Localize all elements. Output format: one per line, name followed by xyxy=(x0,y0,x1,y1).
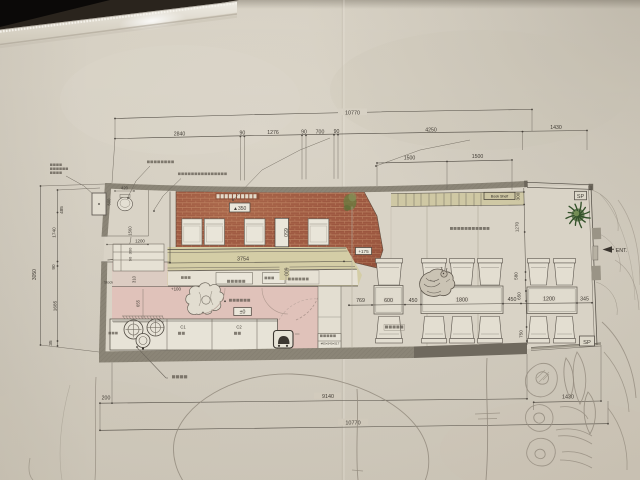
svg-text:300: 300 xyxy=(128,247,133,254)
svg-text:1430: 1430 xyxy=(562,395,574,401)
svg-text:2840: 2840 xyxy=(174,132,186,138)
svg-text:769: 769 xyxy=(356,298,365,304)
svg-text:Stock: Stock xyxy=(104,280,113,284)
svg-text:750: 750 xyxy=(519,330,524,338)
svg-text:580: 580 xyxy=(514,272,519,280)
svg-text:1500: 1500 xyxy=(404,156,416,162)
svg-text:SP: SP xyxy=(583,340,591,346)
svg-text:345: 345 xyxy=(580,296,589,302)
svg-text:450: 450 xyxy=(409,298,418,304)
svg-text:10770: 10770 xyxy=(345,110,360,116)
svg-text:C1: C1 xyxy=(180,325,186,330)
svg-text:3050: 3050 xyxy=(32,269,38,280)
svg-text:90: 90 xyxy=(128,256,133,261)
svg-text:±0: ±0 xyxy=(240,310,246,316)
svg-text:▲350: ▲350 xyxy=(233,206,247,212)
svg-text:1500: 1500 xyxy=(472,154,484,160)
svg-text:1800: 1800 xyxy=(456,298,468,304)
svg-text:700: 700 xyxy=(316,129,325,135)
svg-text:600: 600 xyxy=(107,198,112,206)
svg-text:650: 650 xyxy=(517,292,522,300)
svg-text:+175: +175 xyxy=(358,249,369,254)
svg-text:C2: C2 xyxy=(236,325,242,330)
svg-text:1276: 1276 xyxy=(267,130,279,136)
svg-text:485: 485 xyxy=(59,206,64,214)
svg-text:1685: 1685 xyxy=(53,300,58,311)
svg-text:ENT.: ENT. xyxy=(616,248,627,254)
svg-text:90: 90 xyxy=(301,130,307,136)
svg-text:+100: +100 xyxy=(171,286,181,291)
svg-text:10770: 10770 xyxy=(345,421,360,427)
svg-text:300: 300 xyxy=(516,192,521,200)
svg-text:4250: 4250 xyxy=(425,127,437,133)
svg-text:#65×540×517: #65×540×517 xyxy=(321,342,340,346)
svg-text:35: 35 xyxy=(48,340,53,346)
svg-text:655: 655 xyxy=(136,299,141,307)
svg-text:1270: 1270 xyxy=(515,221,520,232)
svg-text:Book Shelf: Book Shelf xyxy=(491,195,508,199)
svg-text:420: 420 xyxy=(121,186,129,191)
svg-text:1200: 1200 xyxy=(135,239,145,244)
svg-text:SP: SP xyxy=(577,194,585,200)
svg-text:650: 650 xyxy=(282,228,288,237)
svg-text:90: 90 xyxy=(334,129,340,135)
svg-text:90: 90 xyxy=(240,131,246,137)
svg-text:9140: 9140 xyxy=(322,394,334,400)
svg-text:600: 600 xyxy=(283,268,289,277)
svg-text:450: 450 xyxy=(508,297,517,303)
svg-text:3754: 3754 xyxy=(237,256,249,262)
svg-text:200: 200 xyxy=(102,396,111,402)
svg-text:1430: 1430 xyxy=(550,125,562,131)
svg-text:1200: 1200 xyxy=(543,297,555,303)
svg-text:310: 310 xyxy=(132,275,137,283)
svg-text:1560: 1560 xyxy=(128,226,133,236)
svg-text:600: 600 xyxy=(384,298,393,304)
svg-text:90: 90 xyxy=(51,264,56,270)
svg-text:1740: 1740 xyxy=(52,227,57,238)
